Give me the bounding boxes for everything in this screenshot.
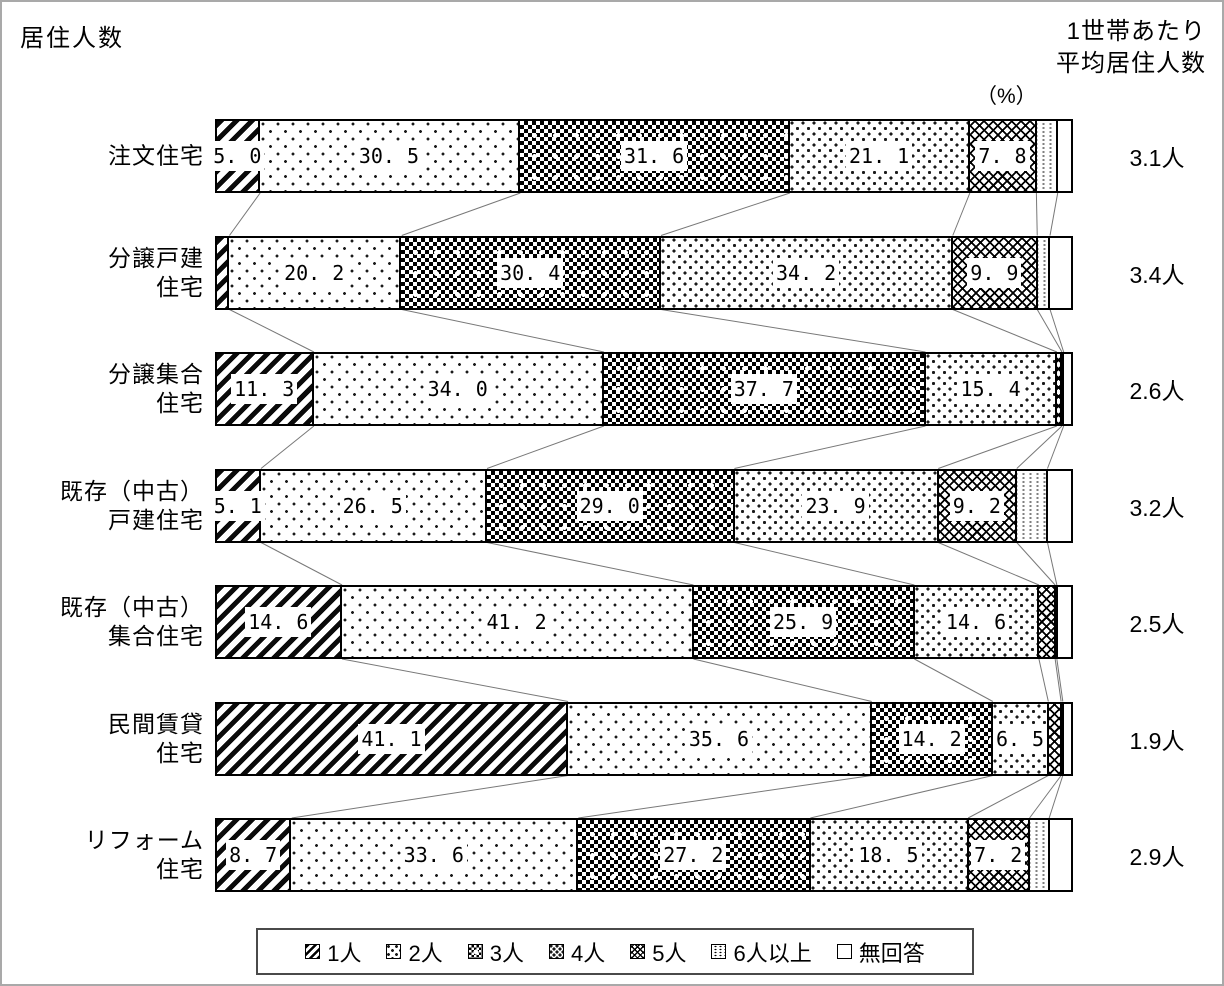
segment-4人: 23. 9 (735, 471, 939, 541)
stacked-bar-row-7: 8. 733. 627. 218. 57. 2 (215, 818, 1073, 892)
connector-line (1036, 193, 1037, 236)
legend-item-3: 3人 (468, 936, 524, 968)
value-label: 34. 2 (773, 258, 839, 288)
connector-line (810, 776, 993, 819)
legend-item-2: 2人 (386, 936, 442, 968)
value-label: 23. 9 (802, 491, 868, 521)
value-label: 27. 2 (660, 840, 726, 870)
segment-5人 (1039, 587, 1055, 657)
legend-label: 5人 (652, 936, 686, 968)
connector-line (1037, 310, 1062, 353)
category-label-row-4: 既存（中古）戸建住宅 (2, 477, 204, 535)
category-label-line: 既存（中古） (2, 593, 204, 622)
value-label: 15. 4 (957, 374, 1023, 404)
legend-label: 6人以上 (733, 936, 811, 968)
value-label: 11. 3 (231, 374, 297, 404)
connector-line (1055, 659, 1061, 702)
segment-6人以上 (1037, 121, 1058, 191)
value-label: 34. 0 (425, 374, 491, 404)
legend-label: 無回答 (859, 936, 925, 968)
legend-swatch-icon (386, 944, 401, 959)
value-label: 31. 6 (621, 141, 687, 171)
segment-2人: 26. 5 (261, 471, 487, 541)
average-residents-label: 3.4人 (1098, 256, 1216, 290)
stacked-bar-row-4: 5. 126. 529. 023. 99. 2 (215, 469, 1073, 543)
value-label: 5. 1 (211, 491, 265, 521)
legend-item-1: 1人 (305, 936, 361, 968)
value-label: 9. 2 (950, 491, 1004, 521)
average-residents-label: 3.2人 (1098, 489, 1216, 523)
legend-label: 4人 (571, 936, 605, 968)
connector-line (292, 776, 568, 819)
legend-label: 2人 (408, 936, 442, 968)
category-label-line: 住宅 (2, 273, 204, 302)
value-label: 30. 4 (497, 258, 563, 288)
connector-line (342, 659, 568, 702)
connector-line (661, 193, 790, 236)
segment-3人: 29. 0 (487, 471, 735, 541)
connector-line (1057, 659, 1063, 702)
value-label: 33. 6 (401, 840, 467, 870)
legend-swatch-icon (630, 944, 645, 959)
segment-2人: 30. 5 (260, 121, 520, 191)
connector-line (1039, 659, 1048, 702)
segment-5人 (1049, 704, 1062, 774)
segment-4人: 21. 1 (790, 121, 970, 191)
value-label: 21. 1 (846, 141, 912, 171)
segment-3人: 30. 4 (401, 238, 661, 308)
legend-label: 1人 (327, 936, 361, 968)
segment-無回答 (1058, 587, 1072, 657)
value-label: 7. 2 (971, 840, 1025, 870)
segment-1人: 5. 0 (217, 121, 260, 191)
secondary-axis-title-line1: 1世帯あたり (1056, 16, 1206, 48)
segment-2人: 33. 6 (291, 820, 578, 890)
segment-1人: 41. 1 (217, 704, 568, 774)
category-label-line: 戸建住宅 (2, 506, 204, 535)
connector-line (968, 776, 1048, 819)
connector-line (229, 193, 260, 236)
category-label-line: 住宅 (2, 855, 204, 884)
category-label-line: 分譲集合 (2, 360, 204, 389)
chart-title: 居住人数 (20, 18, 124, 53)
segment-6人以上 (1017, 471, 1048, 541)
connector-line (402, 193, 521, 236)
segment-3人: 27. 2 (578, 820, 810, 890)
connector-line (734, 543, 914, 586)
average-residents-label: 2.9人 (1098, 838, 1216, 872)
category-label-line: 分譲戸建 (2, 244, 204, 273)
legend-item-6: 6人以上 (711, 936, 811, 968)
connector-line (914, 659, 992, 702)
segment-無回答 (1064, 704, 1072, 774)
connector-line (1050, 310, 1064, 353)
category-label-line: リフォーム (2, 826, 204, 855)
connector-line (1047, 543, 1056, 586)
segment-1人: 14. 6 (217, 587, 342, 657)
value-label: 9. 9 (967, 258, 1021, 288)
stacked-bar-row-1: 5. 030. 531. 621. 17. 8 (215, 119, 1073, 193)
legend-item-7: 無回答 (837, 936, 925, 968)
connector-line (953, 193, 970, 236)
connector-line (487, 543, 693, 586)
connector-line (1030, 776, 1062, 819)
stacked-bar-row-3: 11. 334. 037. 715. 4 (215, 352, 1073, 426)
connector-line (261, 426, 314, 469)
category-label-row-3: 分譲集合住宅 (2, 360, 204, 418)
average-residents-label: 1.9人 (1098, 722, 1216, 756)
legend-swatch-icon (549, 944, 564, 959)
connector-line (1047, 426, 1063, 469)
value-label: 5. 0 (210, 141, 264, 171)
category-label-line: 民間賃貸 (2, 710, 204, 739)
legend-swatch-icon (468, 944, 483, 959)
category-label-line: 住宅 (2, 389, 204, 418)
value-label: 41. 2 (483, 607, 549, 637)
category-label-line: 注文住宅 (2, 142, 204, 171)
category-label-line: 集合住宅 (2, 622, 204, 651)
connector-line (1017, 426, 1062, 469)
segment-3人: 37. 7 (604, 354, 926, 424)
connector-line (938, 543, 1039, 586)
value-label: 29. 0 (577, 491, 643, 521)
segment-1人: 5. 1 (217, 471, 261, 541)
connector-line (578, 776, 871, 819)
value-label: 8. 7 (226, 840, 280, 870)
percent-unit-label: （%） (976, 80, 1037, 110)
segment-5人: 7. 2 (969, 820, 1030, 890)
category-label-line: 住宅 (2, 739, 204, 768)
value-label: 18. 5 (855, 840, 921, 870)
category-label-row-7: リフォーム住宅 (2, 826, 204, 884)
segment-4人: 14. 6 (915, 587, 1040, 657)
legend-item-4: 4人 (549, 936, 605, 968)
average-residents-label: 2.6人 (1098, 372, 1216, 406)
connector-line (1017, 543, 1055, 586)
secondary-axis-title-line2: 平均居住人数 (1056, 48, 1206, 80)
legend-label: 3人 (490, 936, 524, 968)
average-residents-label: 3.1人 (1098, 139, 1216, 173)
chart-frame: 居住人数 1世帯あたり 平均居住人数 （%） 1人2人3人4人5人6人以上無回答… (0, 0, 1224, 986)
segment-4人: 6. 5 (993, 704, 1049, 774)
segment-3人: 14. 2 (872, 704, 993, 774)
segment-1人: 11. 3 (217, 354, 314, 424)
stacked-bar-row-2: 20. 230. 434. 29. 9 (215, 236, 1073, 310)
value-label: 30. 5 (356, 141, 422, 171)
stacked-bar-row-6: 41. 135. 614. 26. 5 (215, 702, 1073, 776)
category-label-line: 既存（中古） (2, 477, 204, 506)
segment-無回答 (1048, 471, 1071, 541)
segment-3人: 31. 6 (520, 121, 790, 191)
category-label-row-1: 注文住宅 (2, 142, 204, 171)
segment-1人 (217, 238, 229, 308)
value-label: 20. 2 (281, 258, 347, 288)
category-label-row-2: 分譲戸建住宅 (2, 244, 204, 302)
category-label-row-5: 既存（中古）集合住宅 (2, 593, 204, 651)
segment-1人: 8. 7 (217, 820, 291, 890)
segment-5人: 7. 8 (970, 121, 1037, 191)
segment-無回答 (1064, 354, 1071, 424)
connector-line (734, 426, 925, 469)
connector-line (953, 310, 1057, 353)
value-label: 35. 6 (686, 724, 752, 754)
connector-line (661, 310, 925, 353)
connector-line (487, 426, 604, 469)
value-label: 6. 5 (993, 724, 1047, 754)
segment-5人: 9. 9 (953, 238, 1038, 308)
value-label: 25. 9 (770, 607, 836, 637)
stacked-bar-row-5: 14. 641. 225. 914. 6 (215, 585, 1073, 659)
connector-line (938, 426, 1057, 469)
segment-3人: 25. 9 (694, 587, 915, 657)
average-residents-label: 2.5人 (1098, 605, 1216, 639)
segment-2人: 35. 6 (568, 704, 872, 774)
connector-line (261, 543, 342, 586)
legend-item-5: 5人 (630, 936, 686, 968)
connector-line (229, 310, 313, 353)
value-label: 26. 5 (340, 491, 406, 521)
value-label: 7. 8 (975, 141, 1029, 171)
legend: 1人2人3人4人5人6人以上無回答 (256, 928, 974, 975)
value-label: 41. 1 (358, 724, 424, 754)
segment-6人以上 (1038, 238, 1051, 308)
segment-無回答 (1050, 238, 1070, 308)
connector-line (402, 310, 604, 353)
segment-無回答 (1050, 820, 1071, 890)
connector-line (1049, 776, 1063, 819)
segment-2人: 34. 0 (314, 354, 604, 424)
segment-無回答 (1058, 121, 1071, 191)
segment-4人: 34. 2 (661, 238, 953, 308)
segment-2人: 41. 2 (342, 587, 694, 657)
connector-line (693, 659, 871, 702)
segment-4人: 18. 5 (811, 820, 969, 890)
segment-2人: 20. 2 (229, 238, 402, 308)
legend-swatch-icon (711, 944, 726, 959)
segment-4人: 15. 4 (926, 354, 1058, 424)
value-label: 37. 7 (731, 374, 797, 404)
category-label-row-6: 民間賃貸住宅 (2, 710, 204, 768)
value-label: 14. 6 (943, 607, 1009, 637)
legend-swatch-icon (837, 944, 852, 959)
segment-5人: 9. 2 (939, 471, 1018, 541)
value-label: 14. 2 (899, 724, 965, 754)
connector-line (1050, 193, 1058, 236)
segment-6人以上 (1030, 820, 1050, 890)
value-label: 14. 6 (245, 607, 311, 637)
secondary-axis-title: 1世帯あたり 平均居住人数 (1056, 16, 1206, 80)
legend-swatch-icon (305, 944, 320, 959)
